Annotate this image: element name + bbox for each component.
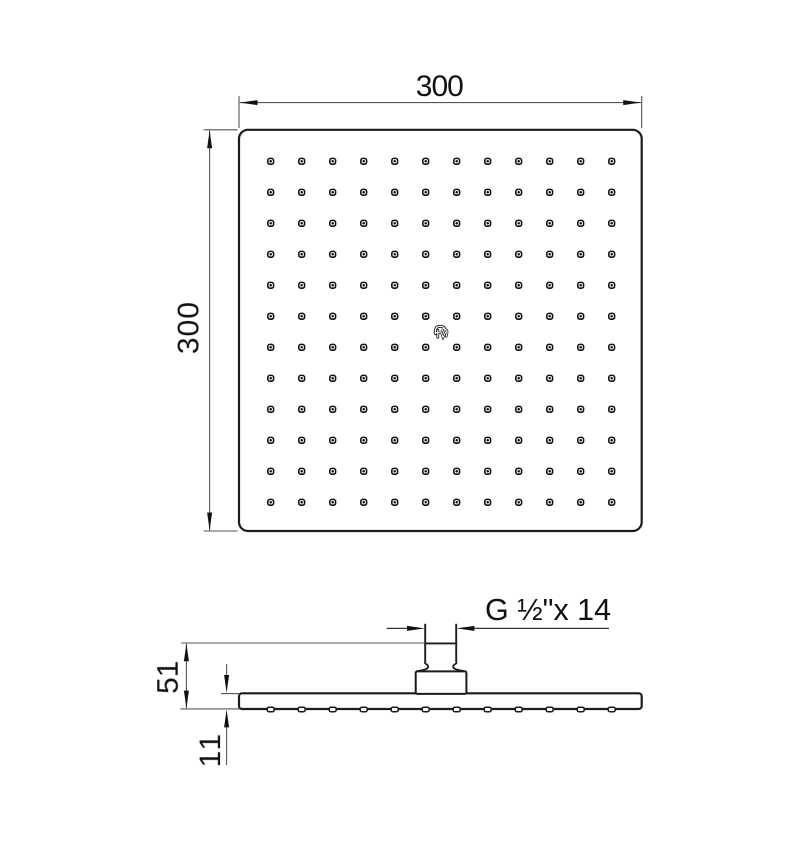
- svg-text:300: 300: [172, 302, 205, 354]
- svg-text:G ½"x 14: G ½"x 14: [485, 593, 611, 627]
- svg-text:300: 300: [416, 70, 464, 103]
- svg-text:11: 11: [194, 734, 227, 768]
- svg-text:51: 51: [152, 661, 185, 694]
